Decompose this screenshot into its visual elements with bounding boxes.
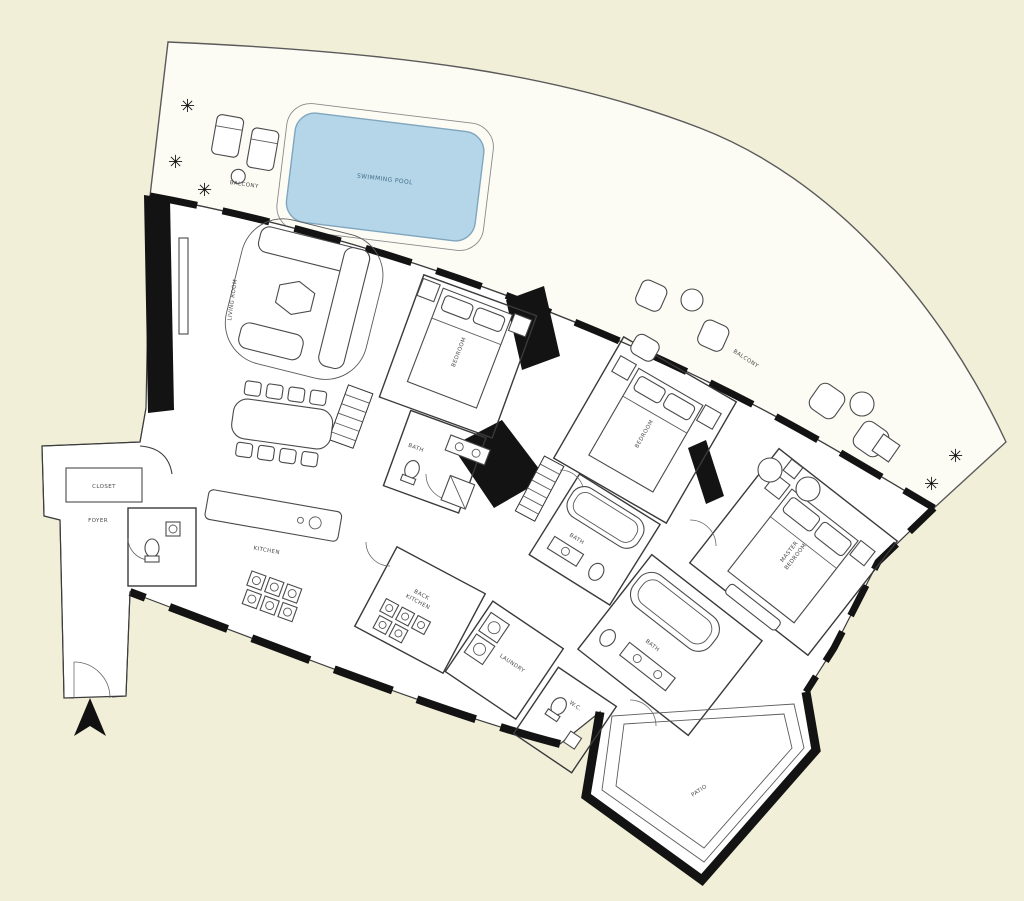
left-wall (144, 195, 174, 413)
floor-plan-svg: SWIMMING POOL ✳ ✳ ✳ ✳ ✳ ✳ BALCONY BALCON… (0, 0, 1024, 901)
master-chair (758, 458, 782, 482)
tv-console (179, 238, 188, 334)
north-arrow-icon (74, 698, 106, 736)
plant-icon: ✳ (924, 474, 939, 495)
plant-icon: ✳ (948, 446, 963, 467)
plant-icon: ✳ (197, 180, 212, 201)
floor-plan: SWIMMING POOL ✳ ✳ ✳ ✳ ✳ ✳ BALCONY BALCON… (0, 0, 1024, 901)
plant-icon: ✳ (180, 96, 195, 117)
master-chair (796, 477, 820, 501)
closet-label: CLOSET (92, 484, 116, 490)
foyer-label: FOYER (88, 518, 108, 524)
plant-icon: ✳ (168, 152, 183, 173)
